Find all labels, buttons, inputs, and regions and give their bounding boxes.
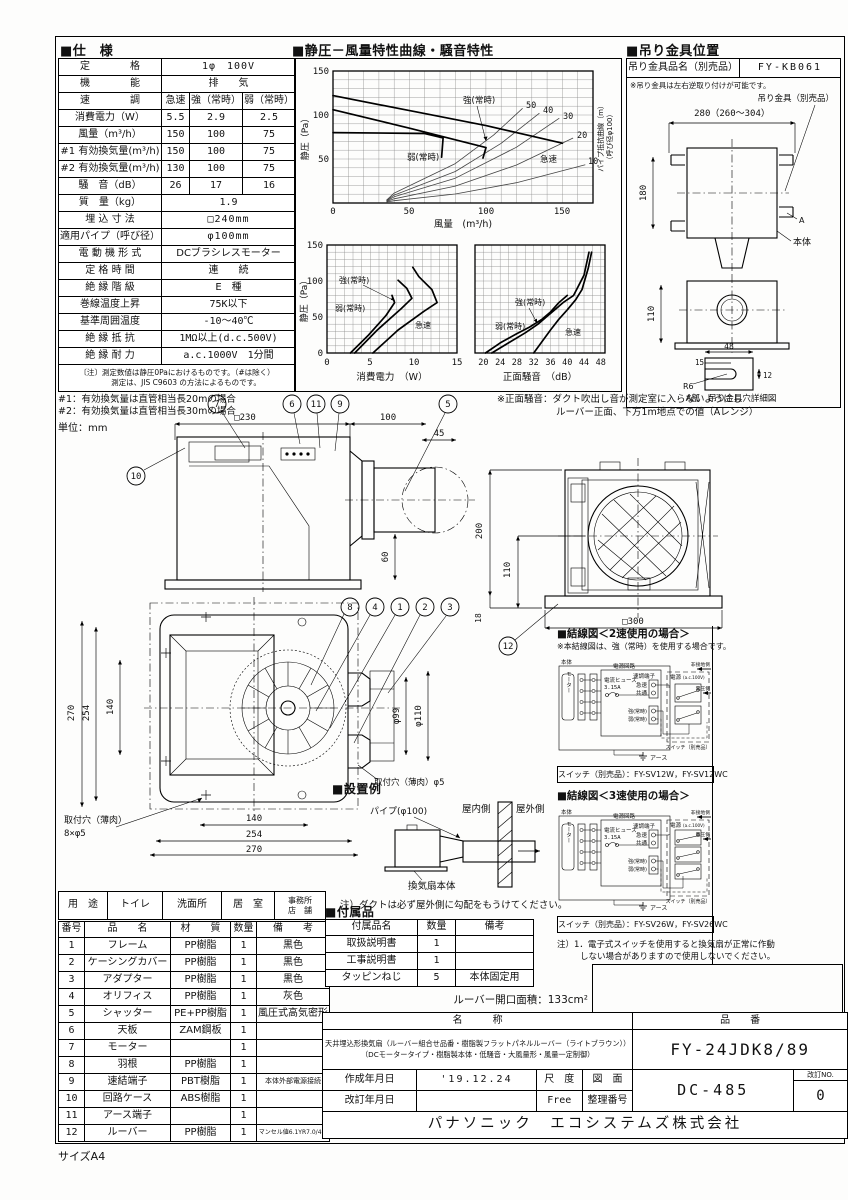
spec-label: 適用パイプ（呼び径） [59,229,162,246]
install-indoor-label: 屋内側 [462,803,491,815]
parts-mat: ZAM鋼板 [171,1023,231,1040]
spec-label: 定 格 時 間 [59,263,162,280]
callout-4: 4 [372,603,377,613]
parts-mat: PP樹脂 [171,955,231,972]
wiring-nonground-label: 非接地側 [691,809,710,816]
callout-2: 2 [422,603,427,613]
spec-value: 75K以下 [162,297,296,314]
pq-ylabel: 静圧（Pa） [299,114,311,161]
parts-no: 9 [59,1074,85,1091]
spec-value: 17 [190,178,243,195]
parts-name: 回路ケース [85,1091,171,1108]
louver-opening-area: ルーバー開口面積：133cm² [358,992,588,1007]
spec-value: □240mm [162,212,296,229]
scale-label: 尺 度 [536,1070,582,1091]
power-xlabel: 消費電力 （W） [356,371,427,383]
usage-item: 洗面所 [163,892,222,920]
acc-rem: 本体固定用 [456,970,534,987]
wiring-strong-label: 強(常時) [628,708,647,715]
bracket-box: 吊り金具品名（別売品） FY-KB061 ※吊り金具は左右逆取り付けが可能です。… [626,58,841,408]
wiring-body-label: 本体 [561,658,573,666]
wiring-weak-label: 弱(常時) [628,866,647,873]
acc-header-name: 付属品名 [326,920,418,936]
pq-right-label-2: （呼び径φ100） [605,111,614,164]
spec-title: ■仕 様 [60,40,113,59]
spec-label: 巻線温度上昇 [59,297,162,314]
spec-note: 〔注〕測定数値は静圧0Paにおけるものです。（#は除く） 測定は、JIS C96… [59,365,296,392]
spec-value: 75 [243,127,296,144]
parts-mat: PP樹脂 [171,1057,231,1074]
acc-qty: 5 [418,970,456,987]
revision-label: 改訂NO. [794,1070,847,1081]
wiring-fast-label: 急速 [636,681,648,689]
bracket-dim-width: 280（260～304） [694,108,770,119]
power-label-rapid: 急速 [415,320,431,330]
parts-mat: ABS樹脂 [171,1091,231,1108]
noise-note-line1: ※正面騒音：ダクト吹出し音が測定室に入らないようにし [497,391,742,405]
parts-row: 11アース端子1 [59,1108,330,1125]
power-ylabel: 静圧（Pa） [298,276,310,323]
bracket-d48: 48 [724,342,734,351]
acc-rem [456,953,534,970]
noise-xtick: 44 [579,358,589,368]
wiring3-diagram: 本体 モーター 電源回路 電流ヒューズ 3.15A 速調端子 [557,804,712,916]
acc-rem [456,936,534,953]
product-name-line1: 天井埋込形換気扇（ルーバー組合せ品番・樹脂製フラットパネルルーバー（ライトブラウ… [325,1039,630,1048]
parts-name: ケーシングカバー [85,955,171,972]
page-size-label: サイズA4 [58,1148,105,1164]
parts-mat: PP樹脂 [171,972,231,989]
number-label: 整理番号 [582,1091,633,1112]
wiring-switch-label: スイッチ（別売品） [665,898,710,905]
parts-rem [257,1108,330,1125]
wiring-terminal-label: 速調端子 [633,822,656,830]
noise-xtick: 36 [545,358,555,368]
parts-row: 6天板ZAM鋼板1 [59,1023,330,1040]
spec-label: 質 量（kg） [59,195,162,212]
wiring2-title: ■結線図＜2速使用の場合＞ [557,626,690,641]
bracket-top-view: A 本体 180 [639,139,811,275]
spec-value: 150 [162,127,190,144]
parts-mat [171,1108,231,1125]
parts-qty: 1 [231,955,257,972]
bracket-bottom-view: 110 [647,275,789,353]
parts-rem: 黒色 [257,955,330,972]
install-outdoor-label: 屋外側 [516,803,545,815]
install-wall [498,802,512,887]
wiring-fuse-rating: 3.15A [604,835,621,841]
spec-col-header: 弱（常時） [243,93,296,110]
acc-qty: 1 [418,953,456,970]
wiring2-diagram: 本体 モーター 電源回路 電流ヒューズ 3.15A 速調端子 [557,654,712,766]
pq-xtick: 150 [554,207,570,217]
spec-label: #1 有効換気量(m³/h) [59,144,162,161]
front-dim-h140: 140 [246,814,262,824]
parts-qty: 1 [231,1006,257,1023]
spec-label: 絶 縁 抵 抗 [59,331,162,348]
parts-header-name: 品 名 [85,922,171,938]
parts-qty: 1 [231,972,257,989]
noise-xtick: 48 [596,358,606,368]
noise-label-rapid: 急速 [565,327,581,337]
parts-no: 12 [59,1125,85,1142]
parts-mat: PE+PP樹脂 [171,1006,231,1023]
spec-value: 1MΩ以上(d.c.500V) [162,331,296,348]
parts-qty: 1 [231,1023,257,1040]
drawing-number: DC-485 [633,1070,794,1112]
parts-name: ルーバー [85,1125,171,1142]
charts-title: ■静圧－風量特性曲線・騒音特性 [292,40,494,59]
spec-value: 100 [190,144,243,161]
power-xtick: 10 [409,358,420,368]
acc-name: 取扱説明書 [326,936,418,953]
parts-rem [257,1040,330,1057]
spec-col-header: 強（常時） [190,93,243,110]
callout-5: 5 [445,400,450,410]
wiring-power-voltage: (a.c.100V) [683,823,705,828]
wiring-switch-label: スイッチ（別売品） [665,744,710,751]
parts-rem: 灰色 [257,989,330,1006]
parts-row: 4オリフィスPP樹脂1灰色 [59,989,330,1006]
parts-header-mat: 材 質 [171,922,231,938]
noise-label-strong: 強(常時) [515,297,545,307]
wiring3-note1: 注）1．電子式スイッチを使用すると換気扇が正常に作動 [557,938,775,950]
parts-row: 5シャッターPE+PP樹脂1風圧式高気密形 [59,1006,330,1023]
spec-value: DCブラシレスモーター [162,246,296,263]
wiring-circuit-label: 電源回路 [613,812,636,820]
front-dim-h270: 270 [246,845,262,855]
parts-row: 7モーター1 [59,1040,330,1057]
parts-name: 羽根 [85,1057,171,1074]
pq-pipe-label: 40 [543,106,553,116]
spec-value: 130 [162,161,190,178]
bracket-note: ※吊り金具は左右逆取り付けが可能です。 [627,78,840,91]
wiring-motor-label: モーター [565,671,572,693]
wiring-terminal-strips [578,674,601,720]
pq-label-rapid: 急速 [540,154,558,165]
callout-7: 7 [214,400,219,410]
install-labels: パイプ(φ100) 屋内側 屋外側 換気扇本体 [370,803,545,892]
wiring-earth: アース [639,752,667,762]
usage-item: 事務所 店 舗 [275,892,326,920]
bracket-drawing: 280（260～304） A 本体 180 [627,103,838,403]
acc-qty: 1 [418,936,456,953]
side-dim-60: 60 [381,552,391,563]
spec-value: 1φ 100V [162,59,296,76]
parts-no: 6 [59,1023,85,1040]
parts-rem: 本体外部電源接続 [257,1074,330,1091]
bracket-name-label: 吊り金具品名（別売品） [627,59,740,78]
wiring3-switch-models: スイッチ（別売品）：FY-SV26W，FY-SV26WC [557,916,714,933]
pq-curve-labels: 強(常時) 弱(常時) 急速 50 40 30 20 10 [407,95,598,167]
parts-header-qty: 数量 [231,922,257,938]
parts-qty: 1 [231,1040,257,1057]
parts-header-rem: 備 考 [257,922,330,938]
parts-rem: マンセル値6.1YR7.0/4.0 [257,1125,330,1142]
parts-rem [257,1023,330,1040]
parts-row: 2ケーシングカバーPP樹脂1黒色 [59,955,330,972]
spec-value: 75 [243,161,296,178]
parts-name: オリフィス [85,989,171,1006]
parts-qty: 1 [231,938,257,955]
pq-ticks: 150 100 50 0 50 100 150 [313,67,570,217]
parts-row: 8羽根PP樹脂1 [59,1057,330,1074]
spec-label: 風量（m³/h） [59,127,162,144]
power-label-weak: 弱(常時) [335,304,365,313]
spec-label: 基準周囲温度 [59,314,162,331]
spec-value: 26 [162,178,190,195]
power-ytick: 50 [312,313,323,323]
wiring-weak-label: 弱(常時) [628,716,647,723]
pq-ytick: 150 [313,67,329,77]
usage-item-line1: 事務所 [288,896,312,905]
side-view-drawing: 7 6 11 9 5 10 □230 100 45 60 [95,396,480,596]
acc-header-qty: 数量 [418,920,456,936]
install-body-label: 換気扇本体 [408,880,456,892]
parts-row: 3アダプターPP樹脂1黒色 [59,972,330,989]
bracket-dim-height2: 110 [647,306,657,322]
front-hole-right-label: 取付穴（薄肉）φ5 [374,777,445,788]
power-ytick: 150 [307,241,323,251]
front-dim-h254: 254 [246,830,262,840]
parts-no: 3 [59,972,85,989]
rear-view-drawing: 200 18 110 □300 [470,418,745,658]
noise-xtick: 32 [529,358,539,368]
front-dim-v254: 254 [82,705,92,721]
pq-xtick: 0 [330,207,335,217]
spec-label: #2 有効換気量(m³/h) [59,161,162,178]
pq-ytick: 100 [313,111,329,121]
power-noise-charts: 強(常時) 弱(常時) 急速 150 100 50 0 0 5 10 15 静圧… [297,235,619,389]
spec-value: 100 [190,161,243,178]
spec-label: 機 能 [59,76,162,93]
parts-mat: PP樹脂 [171,938,231,955]
spec-value: -10～40℃ [162,314,296,331]
parts-name: 天板 [85,1023,171,1040]
spec-label: 電 動 機 形 式 [59,246,162,263]
parts-no: 8 [59,1057,85,1074]
parts-row: 1フレームPP樹脂1黒色 [59,938,330,955]
wiring-common-label: 共通 [636,839,648,847]
wiring3-switch-models-text: スイッチ（別売品）：FY-SV26W，FY-SV26WC [558,920,728,929]
bracket-body-label: 本体 [793,236,811,248]
wiring-earth-label: アース [650,905,667,912]
callout-9: 9 [337,400,342,410]
spec-value: 150 [162,144,190,161]
front-hole-left-label1: 取付穴（薄肉） [64,814,127,826]
wiring3-note2: しない場合がありますので使用しないでください。 [580,950,775,962]
front-dim-v140: 140 [106,699,116,715]
spec-value: 75 [243,144,296,161]
pq-right-label-1: パイプ抵抗曲線（m） [596,102,605,172]
side-dim-230: □230 [234,413,256,423]
rear-body [545,458,722,618]
spec-label: 絶 縁 階 級 [59,280,162,297]
spec-value: 16 [243,178,296,195]
parts-qty: 1 [231,1074,257,1091]
spec-value: 5.5 [162,110,190,127]
rear-callout: 12 [499,604,558,655]
install-unit [385,825,540,871]
wiring-body-label: 本体 [561,808,573,816]
accessories-title: ■付属品 [325,903,374,920]
titleblock-spacer-box [592,964,843,1014]
wiring-terminal-label: 速調端子 [633,672,656,680]
pq-pipe-label: 20 [577,131,587,141]
column-divider [712,626,713,964]
spec-label: 絶 縁 耐 力 [59,348,162,365]
spec-value: 2.5 [243,110,296,127]
wiring-fast-label: 急速 [636,831,648,839]
acc-name: タッピンねじ [326,970,418,987]
pq-pipe-label: 30 [563,112,573,122]
parts-name: シャッター [85,1006,171,1023]
company-name: パナソニック エコシステムズ株式会社 [323,1112,848,1139]
parts-mat [171,1040,231,1057]
spec-label: 消費電力（W） [59,110,162,127]
usage-header: 用 途 [59,892,108,920]
parts-rem: 黒色 [257,938,330,955]
front-dim-phi99: φ99 [392,708,402,724]
power-xtick: 15 [452,358,463,368]
wiring-nonground-label: 非接地側 [691,661,710,668]
revised-label: 改訂年月日 [323,1091,417,1112]
usage-item: 居 室 [222,892,275,920]
pq-xlabel: 風量 (m³/h) [434,219,492,230]
usage-table: 用 途 トイレ 洗面所 居 室 事務所 店 舗 [58,891,326,920]
callout-6: 6 [289,400,294,410]
power-ytick: 0 [318,349,323,359]
parts-no: 4 [59,989,85,1006]
side-dim-100: 100 [380,413,396,423]
parts-table: 番号 品 名 材 質 数量 備 考 1フレームPP樹脂1黒色 2ケーシングカバー… [58,921,330,1142]
acc-row: 取扱説明書 1 [326,936,534,953]
noise-label-weak: 弱(常時) [495,322,525,331]
callout-3: 3 [447,603,452,613]
wiring3-title: ■結線図＜3速使用の場合＞ [557,788,690,803]
wiring-speed-terminals: 急速 共通 強(常時) 弱(常時) [628,830,658,874]
wiring-strong-label: 強(常時) [628,858,647,865]
parts-qty: 1 [231,1108,257,1125]
noise-xtick: 24 [495,358,505,368]
install-drawing: パイプ(φ100) 屋内側 屋外側 換気扇本体 [330,796,590,896]
parts-row: 10回路ケースABS樹脂1 [59,1091,330,1108]
charts-box: 強(常時) 弱(常時) 急速 50 40 30 20 10 150 100 50… [294,58,622,392]
wiring-switch-box: 電源 (a.c.100V) スイッチ（別売品） [665,672,710,751]
spec-label: 騒 音（dB） [59,178,162,195]
install-pipe-label: パイプ(φ100) [370,806,427,817]
callout-8: 8 [347,603,352,613]
power-xtick: 5 [367,358,372,368]
title-block: 名 称 品 番 天井埋込形換気扇（ルーバー組合せ品番・樹脂製フラットパネルルーバ… [322,1012,848,1139]
parts-mat: PP樹脂 [171,989,231,1006]
spec-value: E 種 [162,280,296,297]
spec-value: 連 続 [162,263,296,280]
wiring-power-label: 電源 [670,821,682,829]
accessories-table: 付属品名 数量 備考 取扱説明書 1 工事説明書 1 タッピンねじ 5 本体固定… [325,919,534,987]
rear-dim-110: 110 [503,562,513,578]
pq-label-strong: 強(常時) [463,95,495,106]
install-title: ■設置例 [332,780,381,797]
created-date: '19.12.24 [417,1070,537,1091]
parts-no: 10 [59,1091,85,1108]
pq-label-weak: 弱(常時) [407,152,439,163]
front-hole-left-label2: 8×φ5 [64,829,86,839]
created-label: 作成年月日 [323,1070,417,1091]
spec-sheet: ■仕 様 定 格 1φ 100V 機 能 排 気 速 調 急速 強（常時） 弱（… [0,0,848,1200]
wiring-voltage-label: 電圧側 [696,831,711,838]
wiring-power-label: 電源 [670,673,682,681]
scale-value: Free [536,1091,582,1112]
bracket-name-table: 吊り金具品名（別売品） FY-KB061 [627,59,840,78]
revision-number: 0 [794,1081,847,1111]
wiring-circuit-label: 電源回路 [613,662,636,670]
wiring-fuse-rating: 3.15A [604,685,621,691]
wiring-speed-terminals: 急速 共通 強(常時) 弱(常時) [628,680,658,724]
parts-no: 7 [59,1040,85,1057]
side-body [165,432,475,592]
spec-note-line2: 測定は、JIS C9603 の方法によるものです。 [93,378,261,387]
parts-qty: 1 [231,989,257,1006]
parts-qty: 1 [231,1091,257,1108]
wiring-earth: アース [639,902,667,912]
parts-no: 11 [59,1108,85,1125]
noise-ticks: 20 24 28 32 36 40 44 48 [478,358,606,368]
parts-header-no: 番号 [59,922,85,938]
pq-xtick: 100 [478,207,494,217]
wiring-earth-label: アース [650,755,667,762]
wiring2-note: ※本結線図は、強（常時）を使用する場合です。 [557,641,731,652]
spec-value: 排 気 [162,76,296,93]
power-ticks: 150 100 50 0 0 5 10 15 [307,241,463,368]
revised-date [417,1091,537,1112]
titleblock-pn-header: 品 番 [633,1013,848,1030]
noise-xtick: 28 [512,358,522,368]
noise-xlabel: 正面騒音 （dB） [503,371,577,383]
parts-rem: 風圧式高気密形 [257,1006,330,1023]
product-name-cell: 天井埋込形換気扇（ルーバー組合せ品番・樹脂製フラットパネルルーバー（ライトブラウ… [323,1030,633,1070]
revision-cell: 改訂NO. 0 [794,1070,848,1112]
spec-table: 定 格 1φ 100V 機 能 排 気 速 調 急速 強（常時） 弱（常時） 消… [58,58,296,392]
bracket-d15: 15 [695,358,704,367]
parts-name: モーター [85,1040,171,1057]
usage-item: トイレ [108,892,163,920]
wiring-voltage-label: 電圧側 [696,685,711,692]
parts-row: 9速結端子PBT樹脂1本体外部電源接続 [59,1074,330,1091]
acc-row: タッピンねじ 5 本体固定用 [326,970,534,987]
wiring-power-voltage: (a.c.100V) [683,675,705,680]
rear-dims: 200 18 110 □300 [474,470,722,628]
spec-label: 定 格 [59,59,162,76]
spec-value: 1.9 [162,195,296,212]
front-dim-phi110: φ110 [414,705,424,727]
spec-value: φ100mm [162,229,296,246]
parts-no: 2 [59,955,85,972]
parts-name: フレーム [85,938,171,955]
parts-qty: 1 [231,1057,257,1074]
pq-ytick: 50 [318,155,329,165]
parts-no: 1 [59,938,85,955]
parts-name: アース端子 [85,1108,171,1125]
drawing-label: 図 面 [582,1070,633,1091]
parts-row: 12ルーバーPP樹脂1マンセル値6.1YR7.0/4.0 [59,1125,330,1142]
noise-xtick: 40 [562,358,572,368]
parts-mat: PBT樹脂 [171,1074,231,1091]
bracket-a-label: A [799,216,805,225]
rear-dim-200: 200 [475,523,485,539]
acc-name: 工事説明書 [326,953,418,970]
parts-rem: 黒色 [257,972,330,989]
